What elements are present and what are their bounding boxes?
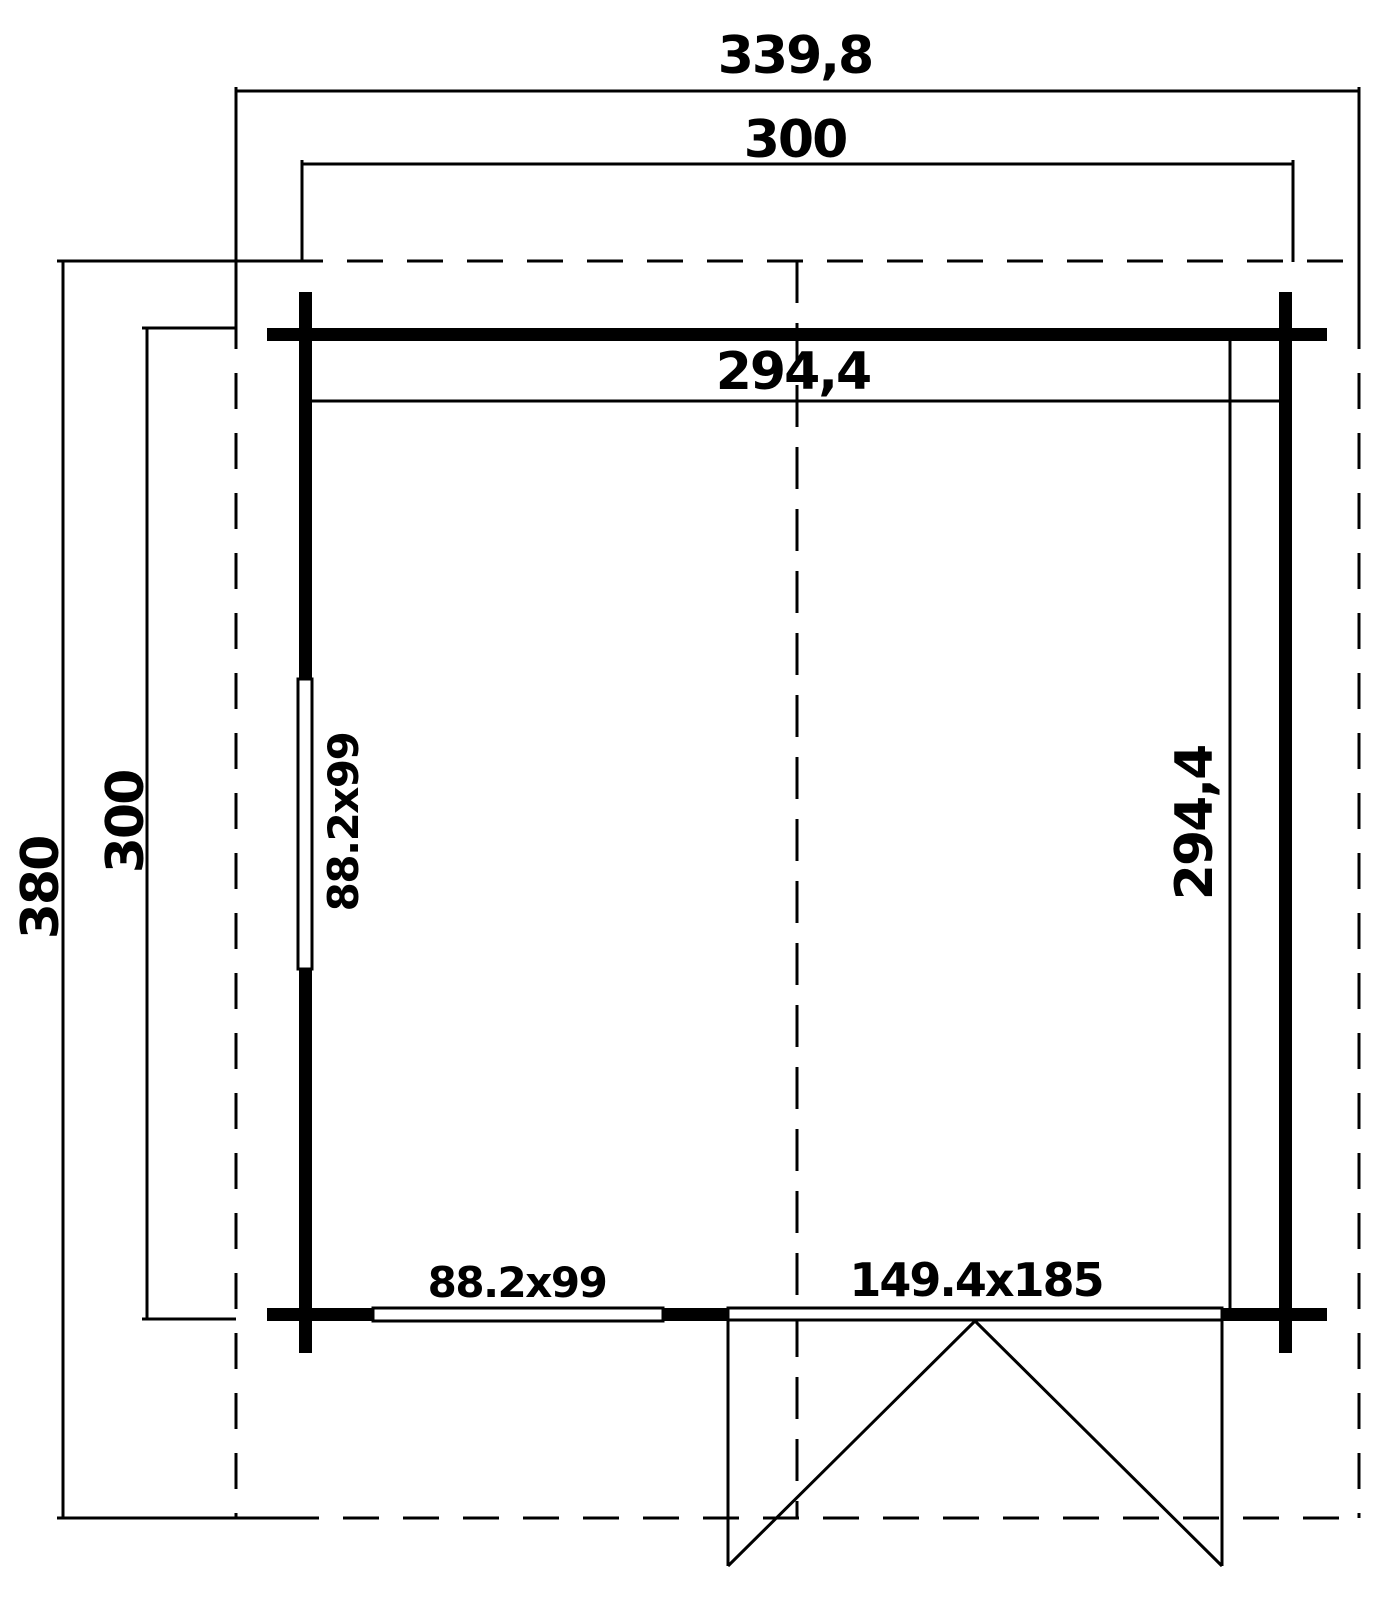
front-window-label: 88.2x99 (428, 1258, 607, 1307)
wall-right (1279, 292, 1292, 1353)
wall-bottom-right (1222, 1308, 1327, 1321)
door-sill (728, 1308, 1222, 1320)
side-window (298, 679, 312, 969)
door-left-leaf-swing (728, 1321, 975, 1566)
door-label: 149.4x185 (849, 1253, 1102, 1307)
interior-depth-label: 294,4 (1165, 746, 1225, 900)
floor-plan-page: 339,8 300 294,4 380 300 294,4 88.2x99 88… (0, 0, 1386, 1600)
wall-depth-label: 300 (96, 771, 156, 874)
roof-depth-label: 380 (11, 837, 71, 940)
wall-left-upper (299, 292, 312, 678)
wall-top (267, 328, 1327, 341)
front-window (373, 1308, 663, 1321)
side-window-label: 88.2x99 (319, 733, 368, 912)
wall-left-lower (299, 970, 312, 1353)
floor-plan-drawing: 339,8 300 294,4 380 300 294,4 88.2x99 88… (0, 0, 1386, 1600)
wall-width-label: 300 (744, 110, 847, 170)
door-right-leaf-swing (975, 1321, 1222, 1566)
interior-width-label: 294,4 (716, 342, 870, 402)
roof-width-label: 339,8 (718, 26, 872, 86)
wall-bottom-middle (663, 1308, 728, 1321)
wall-bottom-left (267, 1308, 373, 1321)
